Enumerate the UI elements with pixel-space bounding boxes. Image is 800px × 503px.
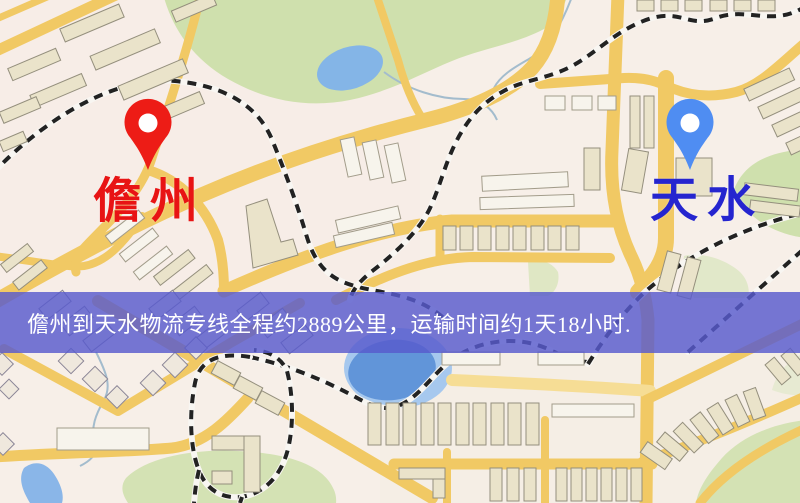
map-canvas [0,0,800,503]
route-banner: 儋州到天水物流专线全程约2889公里，运输时间约1天18小时. [0,292,800,353]
destination-label: 天水 [650,177,764,225]
destination-pin-hole [681,114,700,133]
logistics-map: 儋州 天水 儋州到天水物流专线全程约2889公里，运输时间约1天18小时. [0,0,800,503]
origin-label: 儋州 [93,178,207,226]
route-banner-text: 儋州到天水物流专线全程约2889公里，运输时间约1天18小时. [27,307,631,339]
origin-pin-hole [139,114,158,133]
